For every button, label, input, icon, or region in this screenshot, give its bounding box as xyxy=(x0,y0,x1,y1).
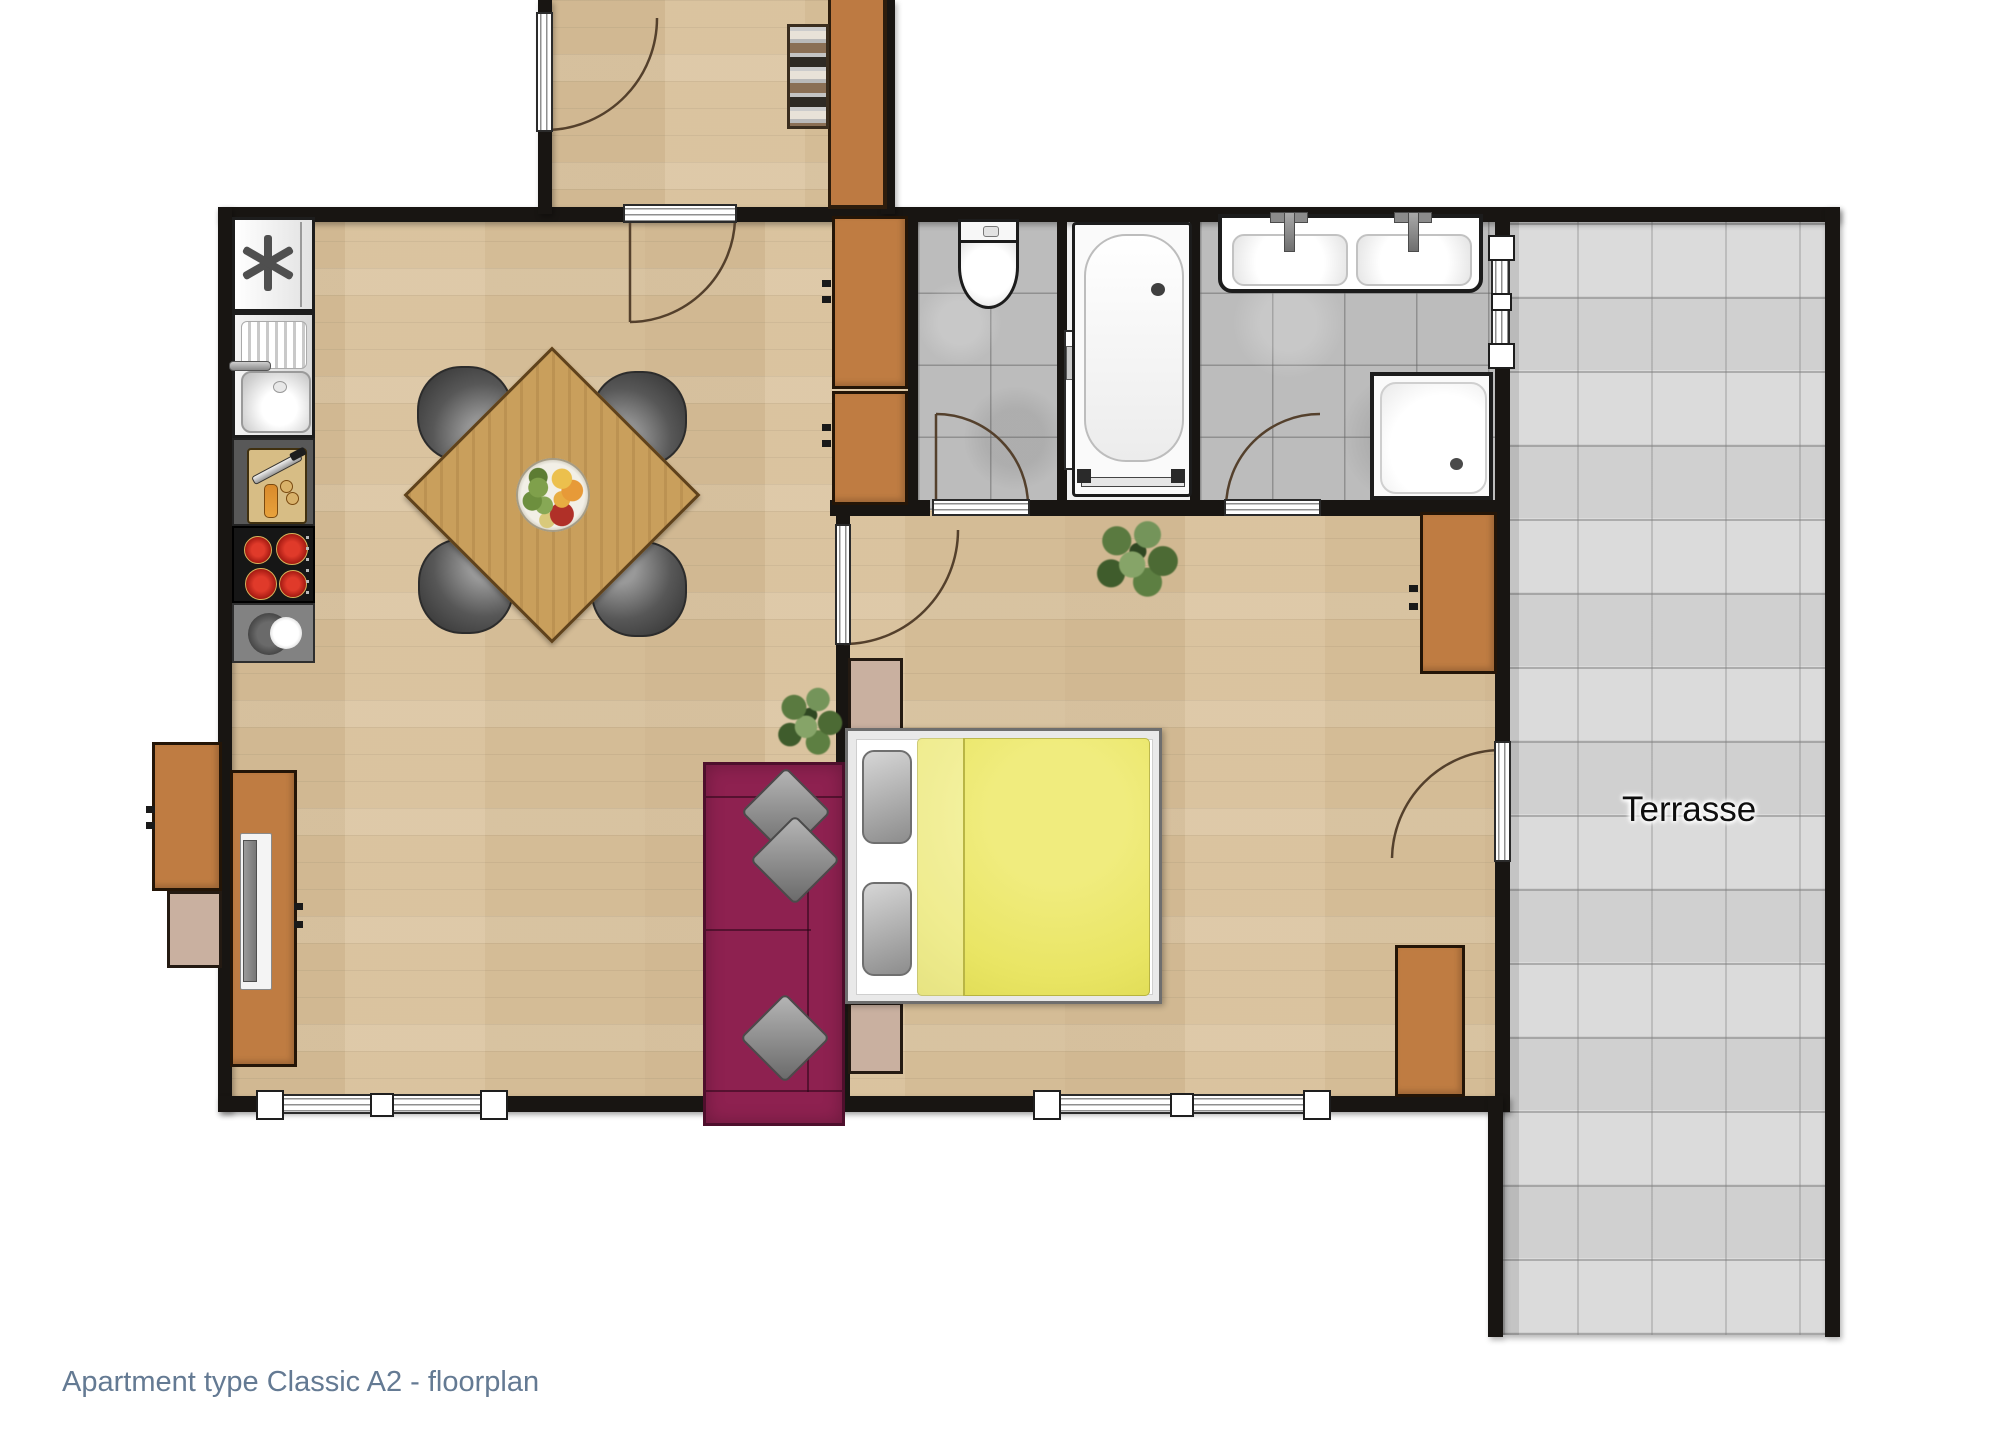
counter-cutting-board xyxy=(232,438,315,526)
terrace-door xyxy=(1494,741,1511,862)
nightstand-bottom xyxy=(848,1002,903,1074)
faucet-icon xyxy=(1408,212,1419,252)
shower-tray xyxy=(1370,372,1493,500)
terrace-left-lower-wall xyxy=(1488,1096,1503,1337)
tv-screen xyxy=(243,840,257,982)
floorplan-canvas: Terrasse Apartment type Classic A2 - flo… xyxy=(0,0,2000,1434)
bed-blanket xyxy=(917,738,1150,996)
bed-pillow xyxy=(862,882,912,976)
hall-cabinet-tall xyxy=(828,0,887,209)
terrace-right-wall xyxy=(1825,207,1840,1337)
wardrobe-cabinet-upper xyxy=(1420,512,1497,674)
living-room-window xyxy=(258,1094,506,1114)
bathtub-towel-bar xyxy=(1081,477,1185,487)
bedroom-window xyxy=(1035,1094,1329,1114)
bathroom-window xyxy=(1491,237,1510,367)
sink-drain xyxy=(273,381,287,393)
entry-door xyxy=(536,12,553,132)
hallway-living-door xyxy=(623,204,737,223)
sink-basin xyxy=(241,371,311,433)
wardrobe-cabinet-lower xyxy=(1395,945,1465,1097)
terrace-floor xyxy=(1503,222,1825,1335)
bathtub-drain xyxy=(1151,283,1165,296)
plant xyxy=(770,680,850,758)
hall-shelf xyxy=(787,24,829,129)
caption: Apartment type Classic A2 - floorplan xyxy=(62,1366,539,1399)
double-sink-vanity xyxy=(1218,214,1483,293)
carrot-icon xyxy=(264,484,278,518)
closet-cabinet-lower xyxy=(832,391,908,505)
toilet-left-wall xyxy=(908,214,918,510)
kitchen-sink-unit xyxy=(232,312,315,438)
fruit-bowl xyxy=(516,458,590,532)
faucet-icon xyxy=(229,361,271,371)
plant xyxy=(1088,510,1184,598)
nightstand-top xyxy=(848,658,903,732)
toilet-tank xyxy=(958,219,1019,243)
exterior-box xyxy=(167,891,222,968)
stove xyxy=(232,526,315,603)
toilet-room-door xyxy=(932,499,1030,516)
shower-drain xyxy=(1450,458,1463,470)
counter-with-bowl xyxy=(232,603,315,663)
terrace-label: Terrasse xyxy=(1622,790,1756,830)
bed-pillow xyxy=(862,750,912,844)
bathtub xyxy=(1072,222,1192,497)
fridge-freezer xyxy=(232,217,315,312)
faucet-icon xyxy=(1284,212,1295,252)
closet-cabinet-upper xyxy=(832,216,908,389)
stove-controls xyxy=(306,536,309,596)
top-wall xyxy=(218,207,1840,222)
exterior-cabinet xyxy=(152,742,222,891)
washroom-door xyxy=(1224,499,1321,516)
bedroom-door xyxy=(835,524,851,645)
